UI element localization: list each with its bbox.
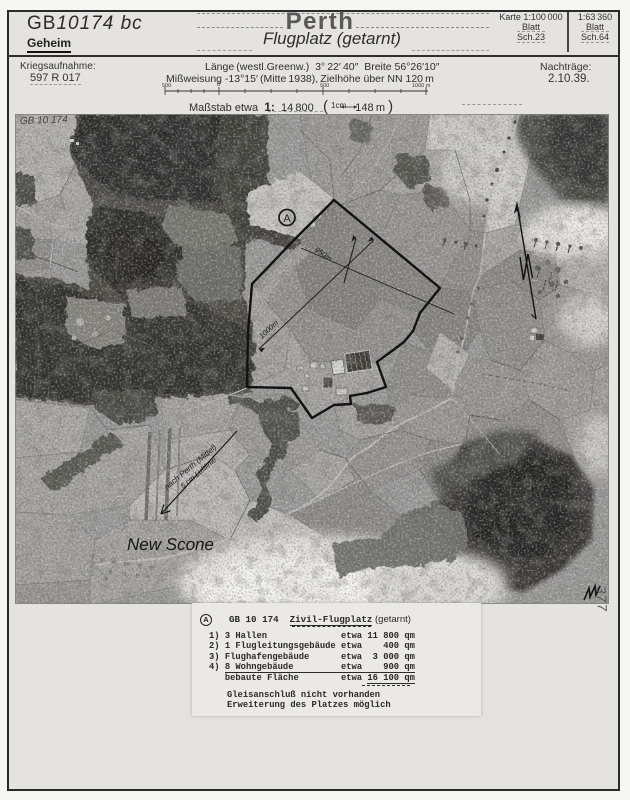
svg-text:500: 500 <box>162 83 171 89</box>
svg-text:New Scone: New Scone <box>127 535 214 554</box>
svg-text:1000 m: 1000 m <box>412 83 431 89</box>
svg-text:0: 0 <box>217 82 220 88</box>
svg-text:GB 10 174: GB 10 174 <box>20 114 69 127</box>
svg-text:500: 500 <box>320 83 329 89</box>
svg-text:A: A <box>283 213 291 225</box>
